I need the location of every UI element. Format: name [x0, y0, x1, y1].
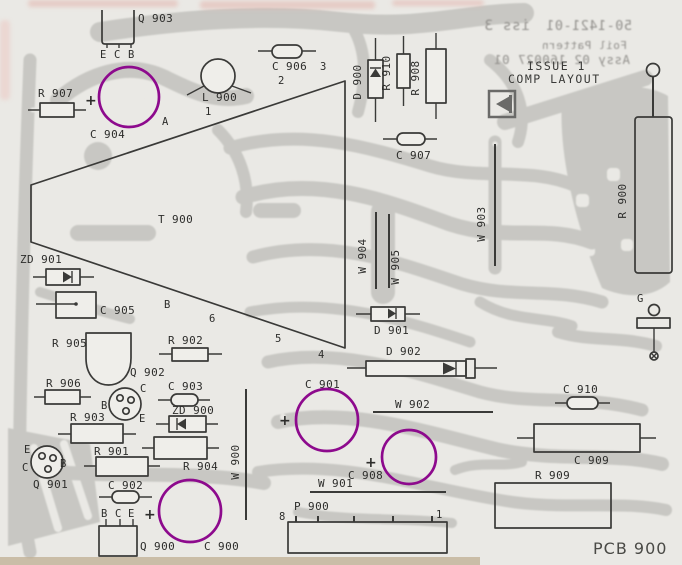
comp-layout-stamp: COMP LAYOUT: [508, 72, 601, 86]
q900-pin-c: C: [115, 508, 121, 520]
l900-label: L 900: [202, 91, 237, 104]
c903-label: C 903: [168, 380, 203, 393]
c909-label: C 909: [574, 454, 609, 467]
c906-pad-2: 2: [278, 75, 284, 87]
d900-label: D 900: [351, 64, 364, 99]
w900-label: W 900: [229, 444, 242, 479]
q900-pin-e: E: [128, 508, 134, 520]
q901-pin-b: B: [60, 458, 66, 470]
q903-pin-e: E: [100, 49, 106, 61]
c906-label: C 906: [272, 60, 307, 73]
t900-pad-b: B: [164, 299, 170, 311]
c902-label: C 902: [108, 479, 143, 492]
r905-label: R 905: [52, 337, 87, 350]
q900-pin-b: B: [101, 508, 107, 520]
c904-label: C 904: [90, 128, 125, 141]
r907-label: R 907: [38, 87, 73, 100]
part-number-mirrored: 50-1421-01: [546, 18, 632, 34]
q903-label: Q 903: [138, 12, 173, 25]
c907-label: C 907: [396, 149, 431, 162]
g-pad-label: G: [637, 293, 643, 305]
q902-pin-e: E: [139, 413, 145, 425]
w903-label: W 903: [475, 206, 488, 241]
r904-label: R 904: [183, 460, 218, 473]
q903-pin-c: C: [114, 49, 120, 61]
p900-pin-8: 8: [279, 511, 285, 523]
c900-polarity-mark: +: [144, 507, 156, 523]
p900-pin-1: 1: [436, 509, 442, 521]
t900-pad-a: A: [162, 116, 169, 128]
r903-label: R 903: [70, 411, 105, 424]
r910-label: R 910: [380, 55, 393, 90]
pcb-layout-sheet: 50-1421-01 iss 3 Foil Pattern Assy 02 16…: [0, 0, 682, 565]
zd900-label: ZD 900: [172, 404, 214, 417]
foil-pattern-mirrored: Foil Pattern: [542, 39, 627, 52]
t900-pad-5: 5: [275, 333, 281, 345]
d902-label: D 902: [386, 345, 421, 358]
r906-label: R 906: [46, 377, 81, 390]
q902-pin-c: C: [140, 383, 146, 395]
q900-label: Q 900: [140, 540, 175, 553]
t900-pad-4: 4: [318, 349, 324, 361]
c900-label: C 900: [204, 540, 239, 553]
c901-label: C 901: [305, 378, 340, 391]
c910-label: C 910: [563, 383, 598, 396]
t900-label: T 900: [158, 213, 193, 226]
w904-label: W 904: [356, 238, 369, 273]
issue-rev-mirrored: iss 3: [484, 18, 530, 34]
l900-pad-1: 1: [205, 106, 211, 118]
r902-label: R 902: [168, 334, 203, 347]
q903-pin-b: B: [128, 49, 134, 61]
r908-label: R 908: [409, 60, 422, 95]
t900-pad-6: 6: [209, 313, 215, 325]
c906-pad-3: 3: [320, 61, 326, 73]
d901-label: D 901: [374, 324, 409, 337]
q901-label: Q 901: [33, 478, 68, 491]
c904-polarity-mark: +: [85, 93, 97, 109]
c905-label: C 905: [100, 304, 135, 317]
r909-label: R 909: [535, 469, 570, 482]
r900-label: R 900: [616, 183, 629, 218]
p900-label: P 900: [294, 500, 329, 513]
pcb-layout-drawing: 50-1421-01 iss 3 Foil Pattern Assy 02 16…: [0, 0, 682, 565]
w902-label: W 902: [395, 398, 430, 411]
board-name: PCB 900: [593, 539, 667, 558]
issue-stamp: ISSUE 1: [527, 59, 586, 73]
scan-edge: [0, 557, 480, 565]
w905-label: W 905: [389, 249, 402, 284]
q901-pin-c: C: [22, 462, 28, 474]
q901-pin-e: E: [24, 444, 30, 456]
r901-label: R 901: [94, 445, 129, 458]
c901-polarity-mark: +: [279, 413, 291, 429]
q902-label: Q 902: [130, 366, 165, 379]
c908-polarity-mark: +: [365, 455, 377, 471]
zd901-label: ZD 901: [20, 253, 62, 266]
